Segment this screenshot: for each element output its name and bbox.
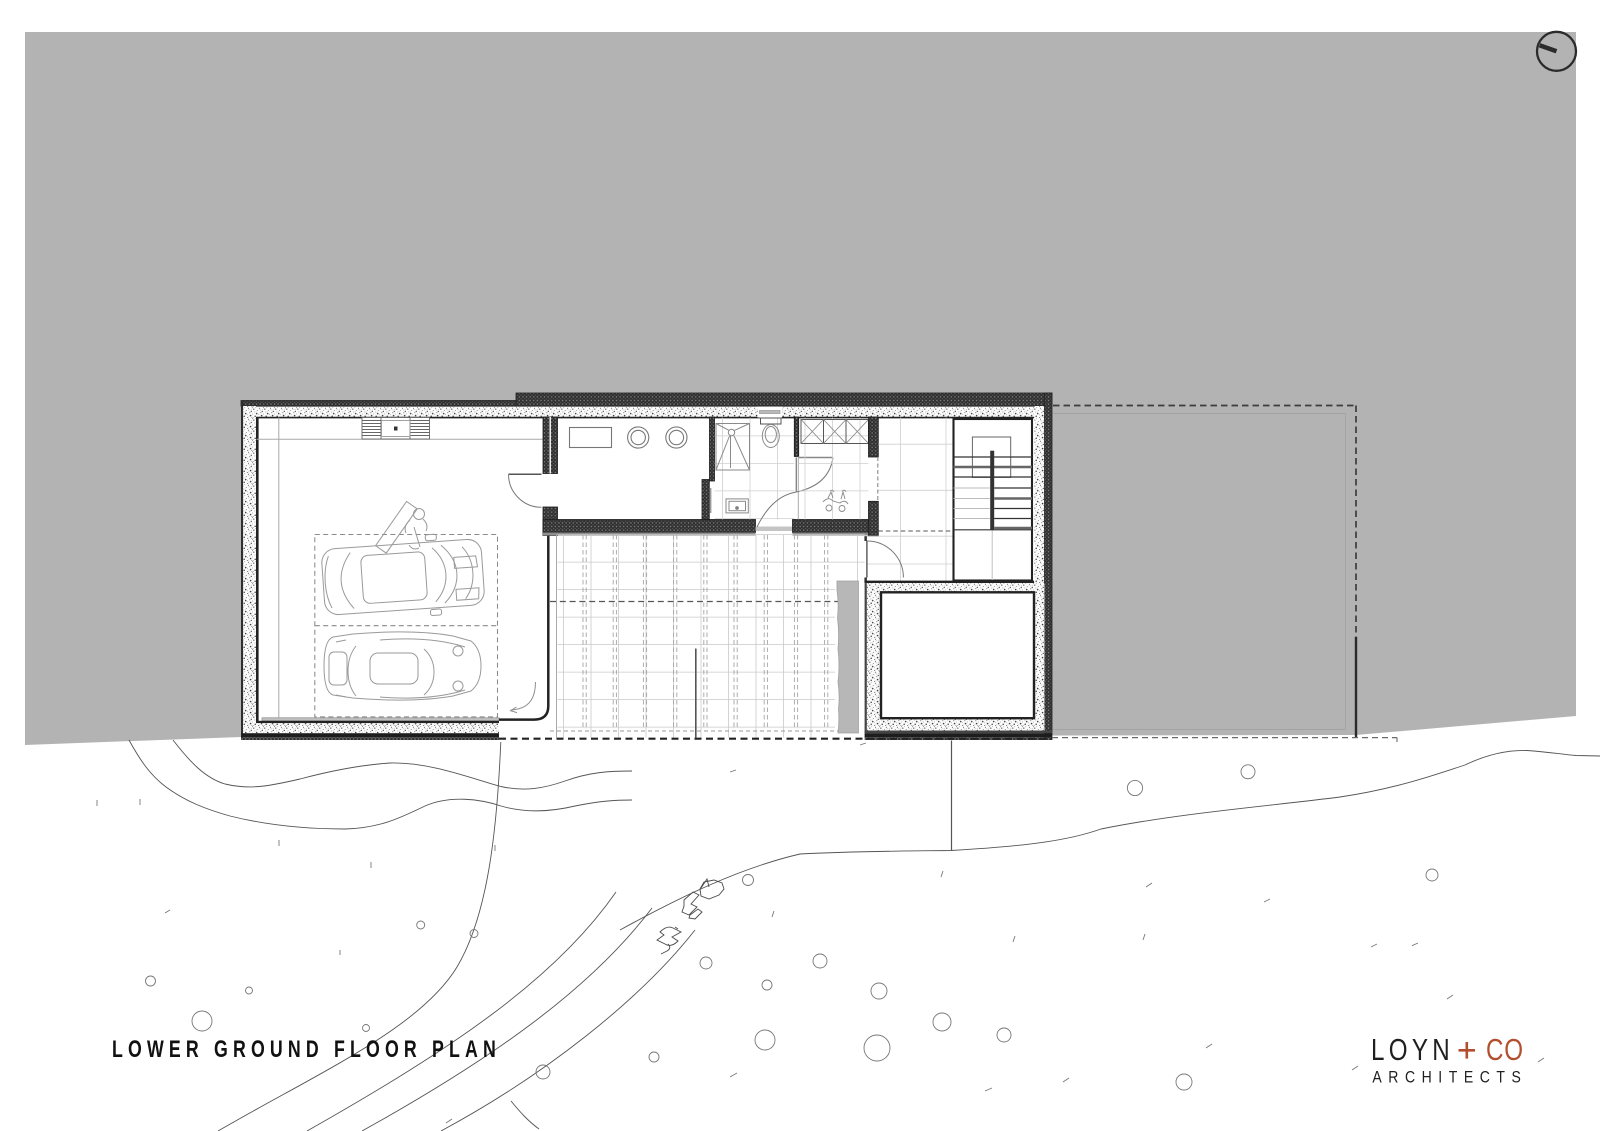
svg-text:LOYN: LOYN [1371, 1032, 1454, 1067]
svg-text:CO: CO [1486, 1032, 1524, 1067]
svg-text:LOWER GROUND FLOOR PLAN: LOWER GROUND FLOOR PLAN [112, 1036, 501, 1063]
svg-text:ARCHITECTS: ARCHITECTS [1372, 1068, 1527, 1086]
